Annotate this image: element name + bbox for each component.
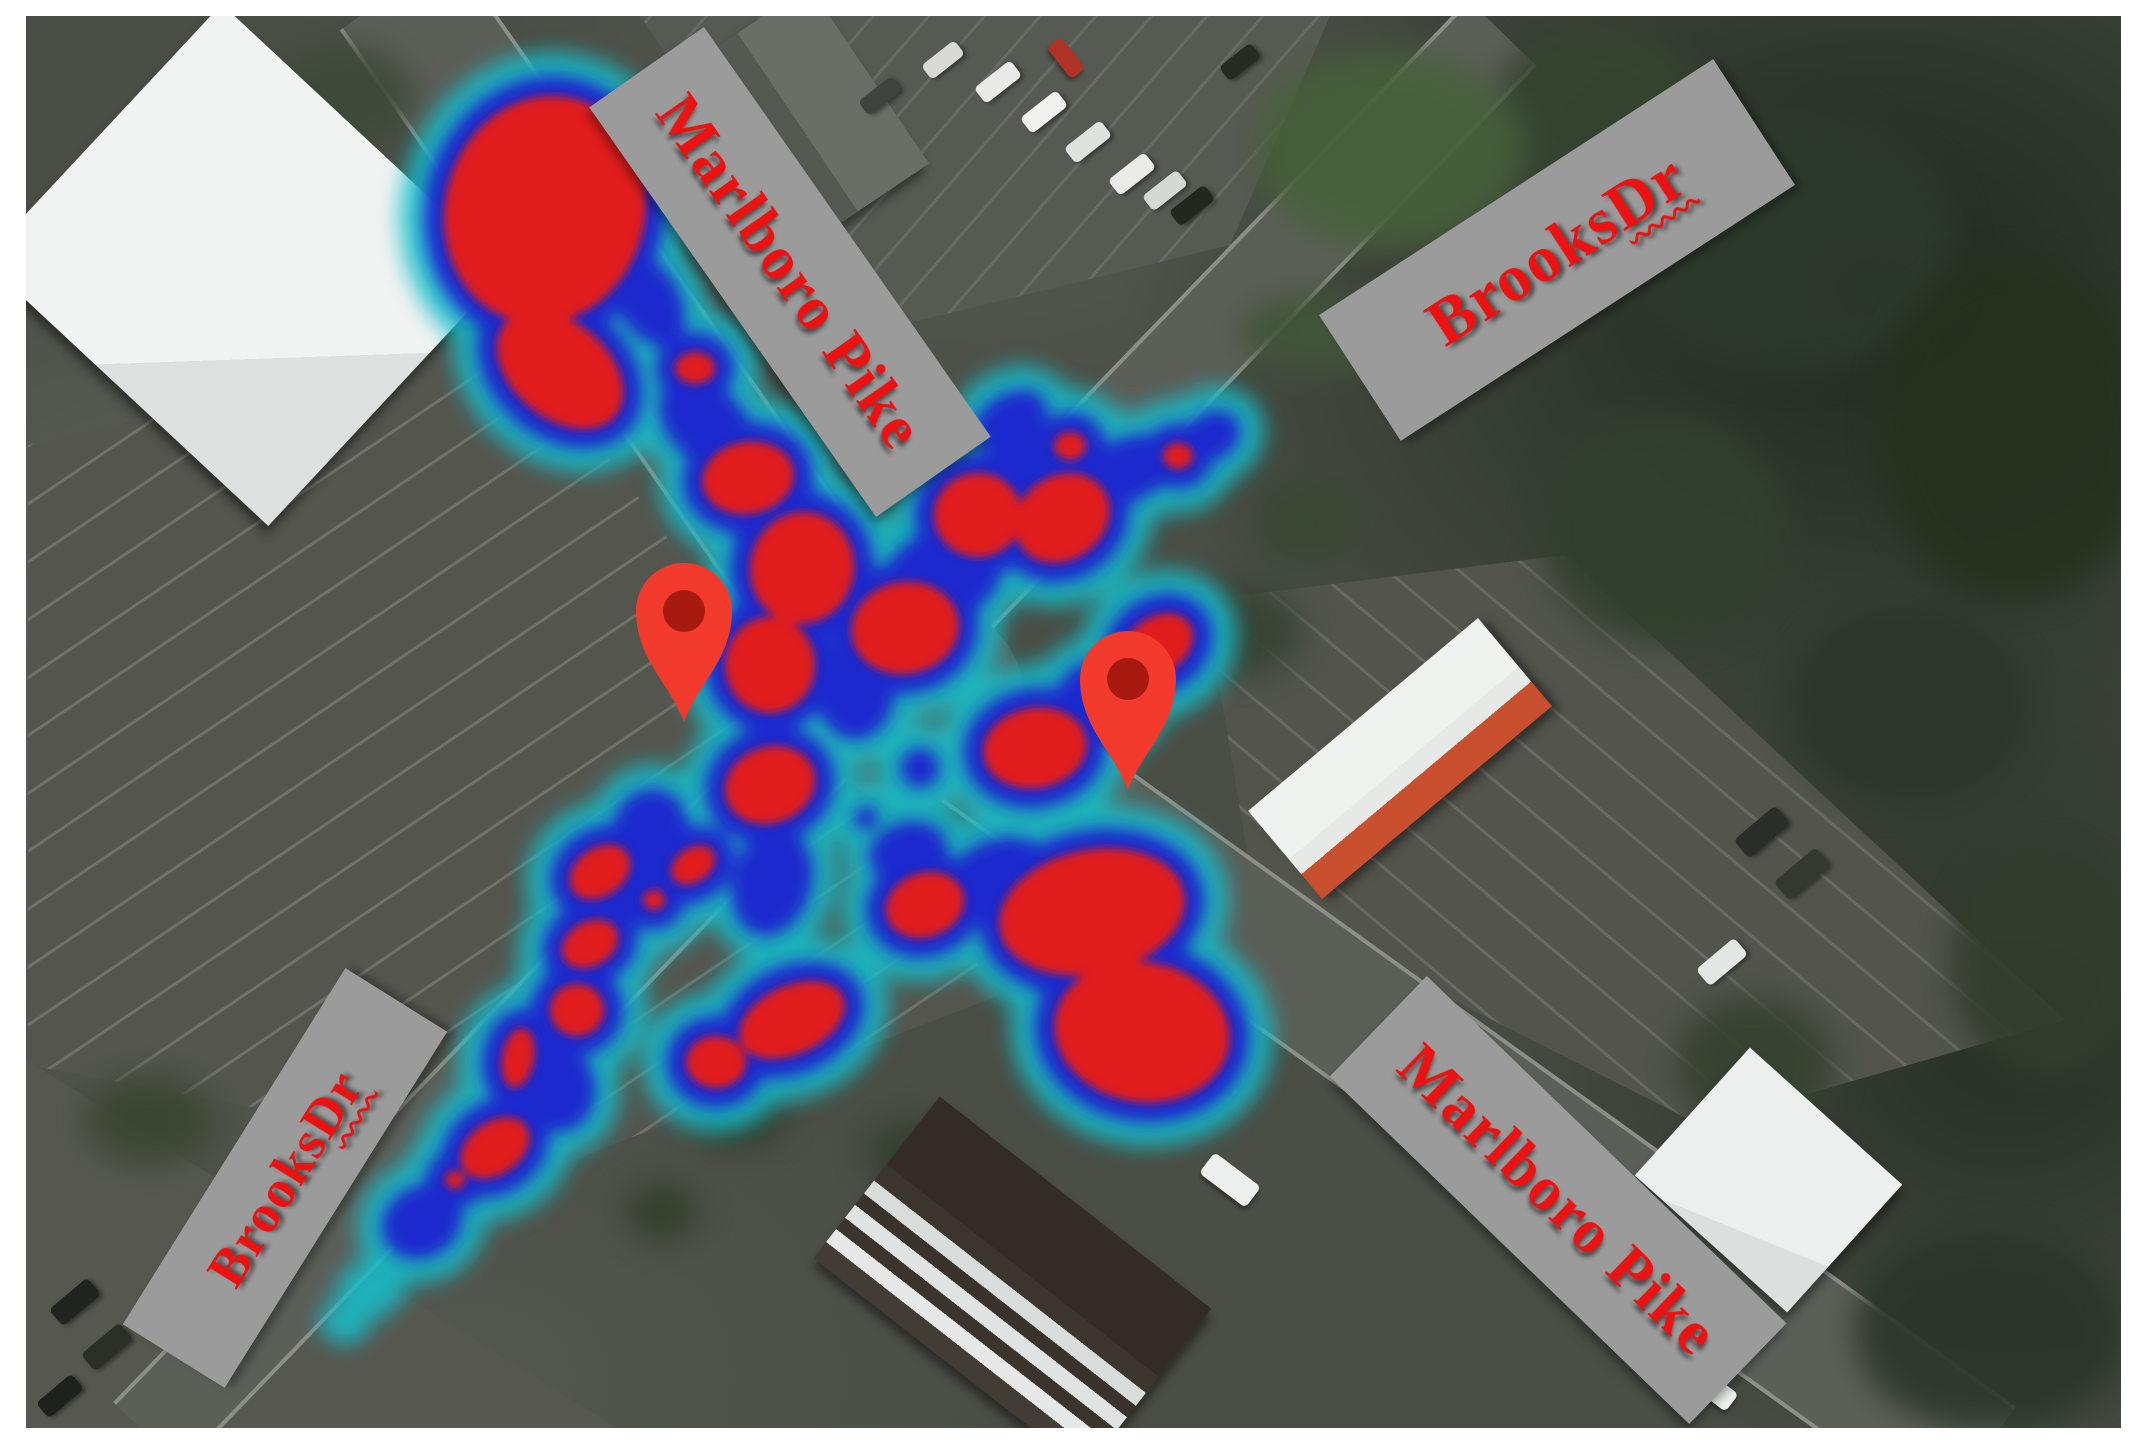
- frame-right: [2121, 0, 2133, 1450]
- satellite-map: Marlboro PikeBrooks DrBrooks DrMarlboro …: [0, 0, 2133, 1450]
- frame-top: [0, 0, 2133, 16]
- pin-core-dot: [663, 590, 705, 632]
- screenshot-page: Marlboro PikeBrooks DrBrooks DrMarlboro …: [0, 0, 2133, 1450]
- frame-bottom: [0, 1428, 2133, 1450]
- pin-core-dot: [1107, 658, 1149, 700]
- frame-left: [0, 0, 26, 1450]
